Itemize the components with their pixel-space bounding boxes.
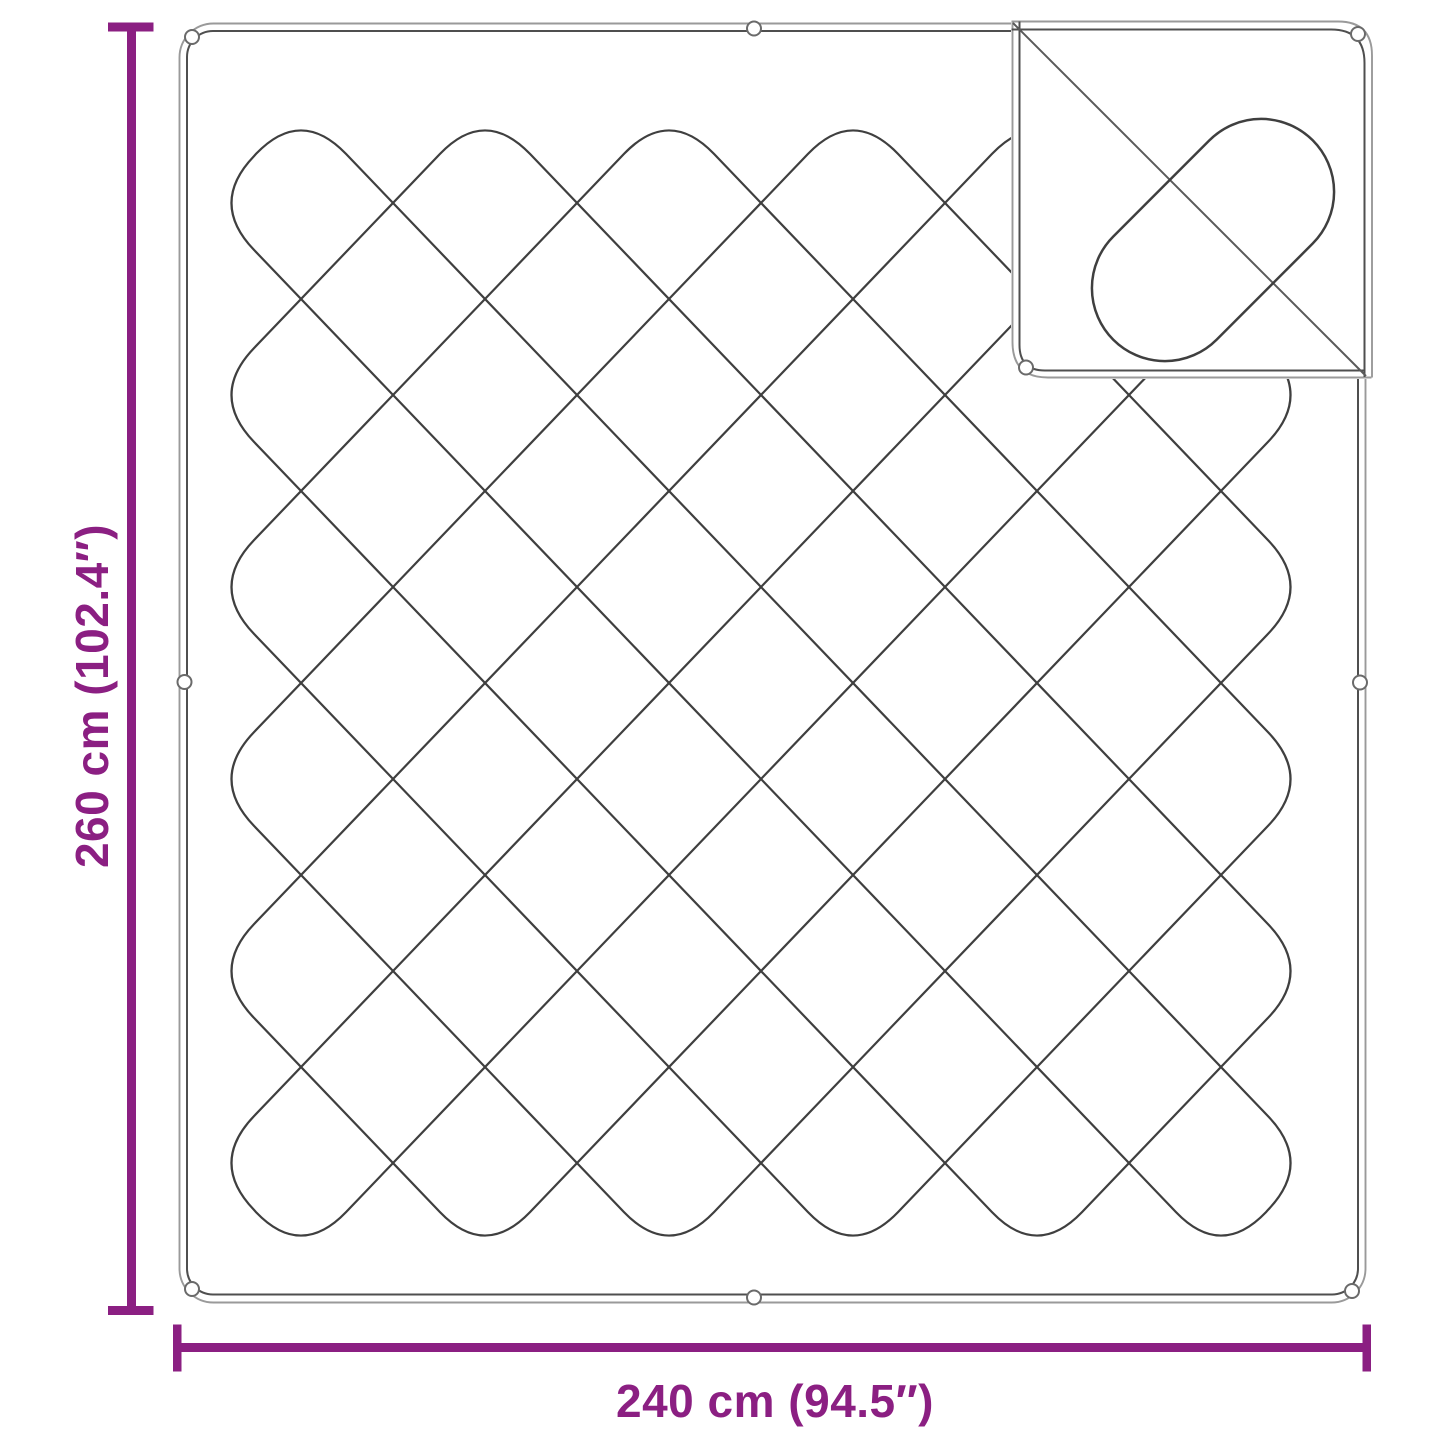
folded-corner-flap	[1011, 19, 1374, 391]
height-dimension-label: 260 cm (102.4″)	[65, 524, 119, 868]
height-dimension-cap-bottom	[108, 1306, 154, 1315]
width-dimension-cap-left	[173, 1325, 182, 1372]
snap-eyelet	[178, 675, 192, 689]
snap-eyelet	[747, 22, 761, 36]
flap-face	[1011, 19, 1374, 379]
snap-eyelet	[1019, 361, 1033, 375]
snap-eyelet	[747, 1291, 761, 1305]
horizontal-dimension-line	[173, 1325, 1371, 1372]
snap-eyelet	[1353, 676, 1367, 690]
width-dimension-label: 240 cm (94.5″)	[616, 1374, 934, 1428]
width-dimension-cap-right	[1363, 1325, 1372, 1372]
blanket-illustration	[0, 0, 1445, 1445]
snap-eyelet	[185, 1282, 199, 1296]
height-dimension-shaft	[127, 23, 136, 1311]
width-dimension-shaft	[173, 1343, 1371, 1352]
snap-eyelet	[185, 30, 199, 44]
blanket-dimension-diagram: 260 cm (102.4″) 240 cm (94.5″)	[0, 0, 1445, 1445]
snap-eyelet	[1351, 27, 1365, 41]
snap-eyelet	[1345, 1284, 1359, 1298]
height-dimension-cap-top	[108, 23, 154, 32]
